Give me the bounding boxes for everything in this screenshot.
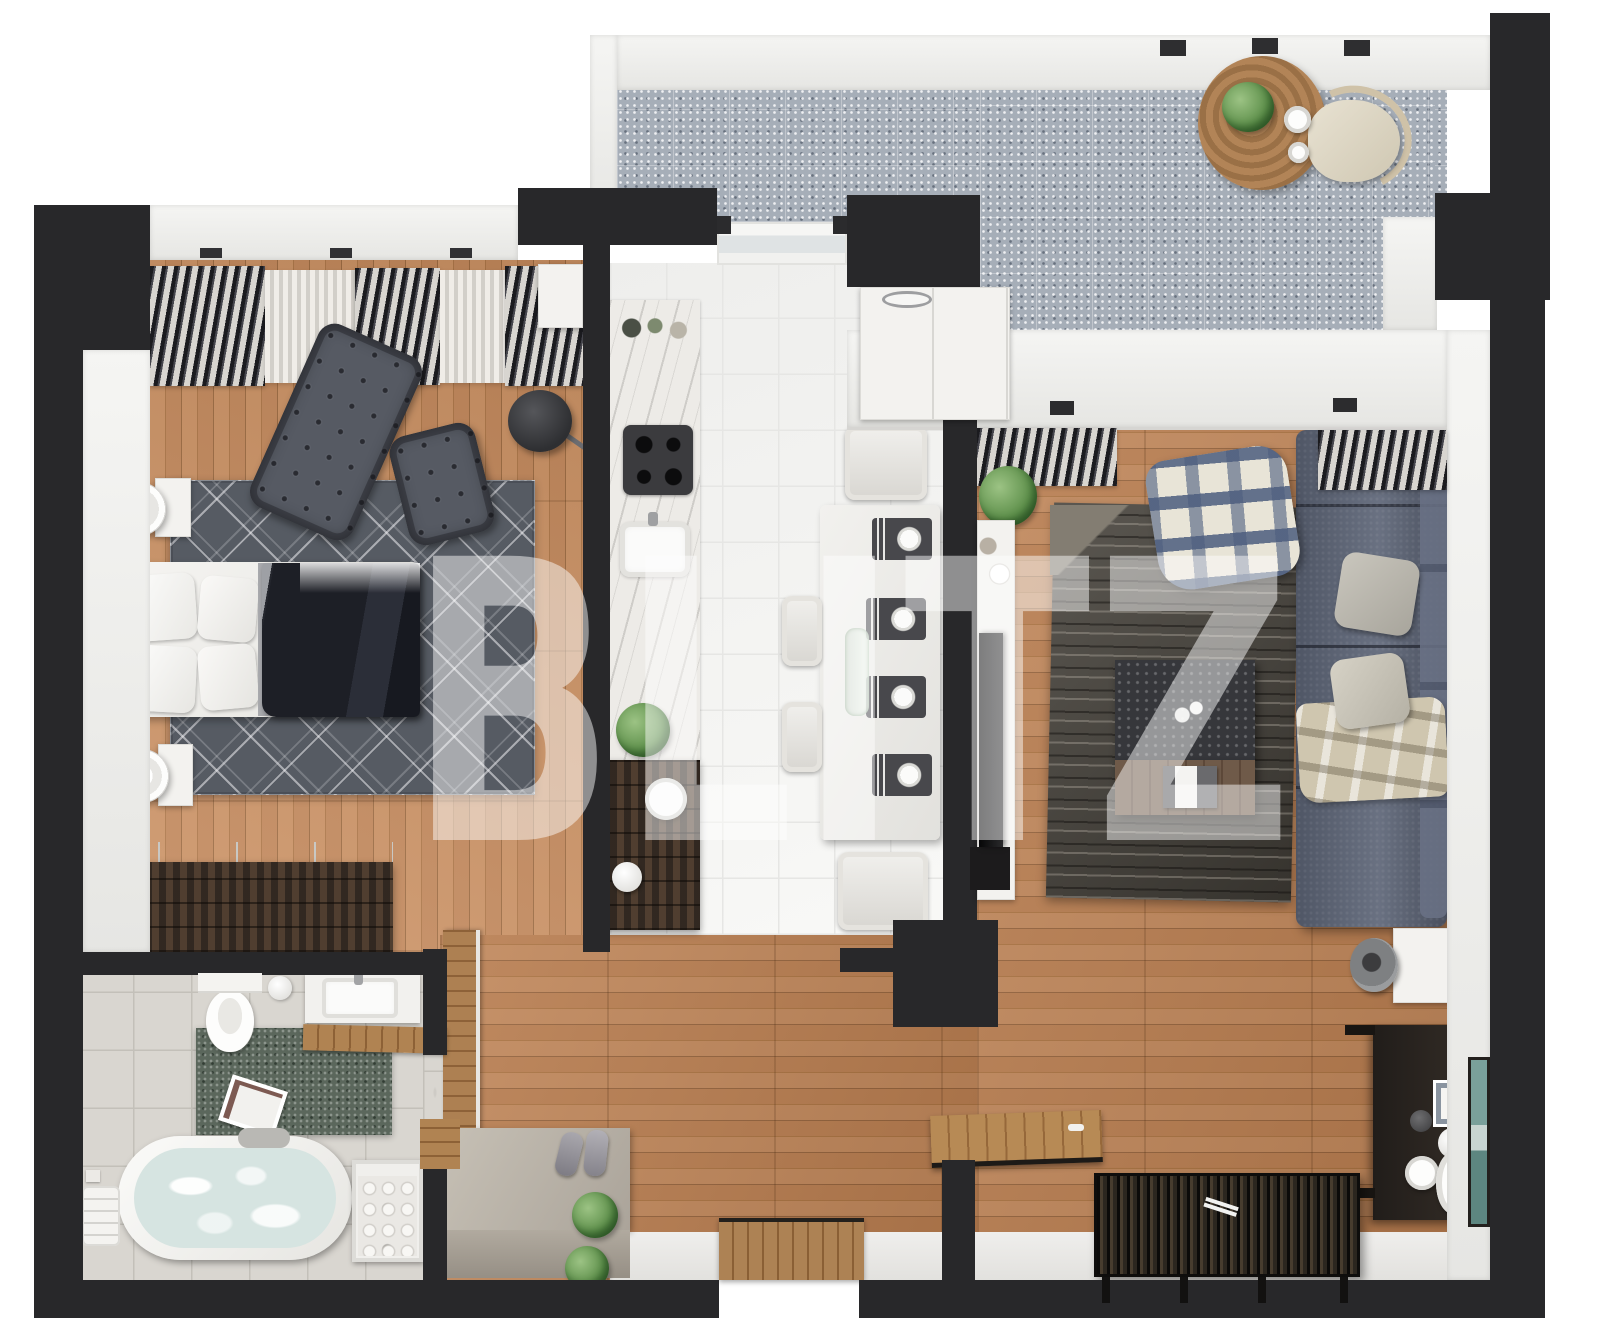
terrace-corner-step — [1383, 217, 1437, 330]
terrace-cup-2 — [1288, 142, 1309, 163]
bathroom-jar — [268, 976, 292, 1000]
wall-bottom-right — [859, 1280, 1545, 1318]
shoe-bench — [1094, 1173, 1360, 1277]
toilet-tank — [198, 973, 262, 993]
sofa-pillow-2 — [1328, 651, 1411, 731]
wall-kitchen-pillar — [893, 920, 998, 1027]
sunshade-bracket-3 — [1344, 40, 1370, 56]
bed-pillow-3 — [196, 575, 259, 644]
desk-leg-top — [1345, 1025, 1375, 1035]
bed-pillow-4 — [196, 643, 259, 712]
bed-duvet-highlight — [300, 563, 420, 593]
desk-bowl — [1405, 1156, 1439, 1190]
floor-plan-render: BLITZ — [0, 0, 1600, 1333]
sunshade-bracket-1 — [1160, 40, 1186, 56]
bench-leg-2 — [1180, 1277, 1188, 1303]
watermark-text: BLITZ — [408, 545, 1038, 865]
wardrobe-clothes-left — [150, 266, 265, 386]
terrace-cup-1 — [1284, 106, 1311, 133]
sofa-side-table — [1393, 928, 1450, 1003]
wall-left — [34, 350, 83, 1283]
paper-basket — [1350, 938, 1398, 992]
window-bracket-3 — [1333, 398, 1357, 412]
curtain-bracket-1 — [200, 248, 222, 258]
wall-bottom-left — [34, 1280, 719, 1318]
bench-leg-3 — [1258, 1277, 1266, 1303]
sofa-pillow-1 — [1333, 550, 1422, 637]
bench-leg-4 — [1340, 1277, 1348, 1303]
toilet-bowl — [206, 990, 254, 1052]
kitchen-tall-cabinet — [860, 287, 1010, 420]
bath-heater — [82, 1186, 120, 1246]
wall-top-left-corner — [34, 205, 150, 350]
living-curtain-right — [1318, 430, 1447, 490]
entry-door-handle — [1068, 1124, 1084, 1131]
rolled-towels — [358, 1176, 417, 1256]
leaning-art-frame — [1468, 1057, 1490, 1227]
wall-bathroom-right-upper — [423, 949, 447, 1055]
bedroom-left-wall-face — [83, 350, 150, 952]
tub-headrest — [238, 1128, 290, 1148]
sunshade-bracket-2 — [1252, 38, 1278, 54]
bath-socket — [86, 1170, 100, 1182]
wall-kitchen-terrace — [847, 195, 980, 287]
desk-jar — [1410, 1110, 1432, 1132]
bedroom-side-table — [508, 390, 572, 452]
terrace-table-plant — [1222, 82, 1274, 132]
curtain-bracket-3 — [450, 248, 472, 258]
wall-right-main — [1490, 300, 1545, 1318]
window-bracket-2 — [1050, 401, 1074, 415]
counter-items — [616, 306, 694, 350]
wall-bedroom-kitchen-top — [518, 188, 717, 245]
bench-leg-1 — [1102, 1277, 1110, 1303]
terrace-chair-seat — [1308, 100, 1400, 182]
wall-right-step — [1435, 193, 1490, 300]
curtain-bracket-2 — [330, 248, 352, 258]
wall-bathroom-wood-cap — [420, 1119, 460, 1169]
wall-right-top — [1490, 13, 1550, 300]
terrace-sliding-door — [717, 222, 847, 265]
wall-kitchen-bottom-stub — [840, 948, 893, 972]
cabinet-hood-oval — [882, 291, 932, 308]
sofa-back-cushions — [1420, 438, 1447, 918]
bedroom-corner-shelf — [538, 264, 583, 328]
entry-doormat — [719, 1218, 864, 1280]
bedroom-curtain-2 — [440, 270, 505, 383]
bathtub-water — [134, 1148, 336, 1248]
wall-bedroom-bottom — [34, 952, 440, 975]
wall-entry-jamb — [942, 1160, 975, 1280]
hall-plant-1 — [572, 1192, 618, 1238]
